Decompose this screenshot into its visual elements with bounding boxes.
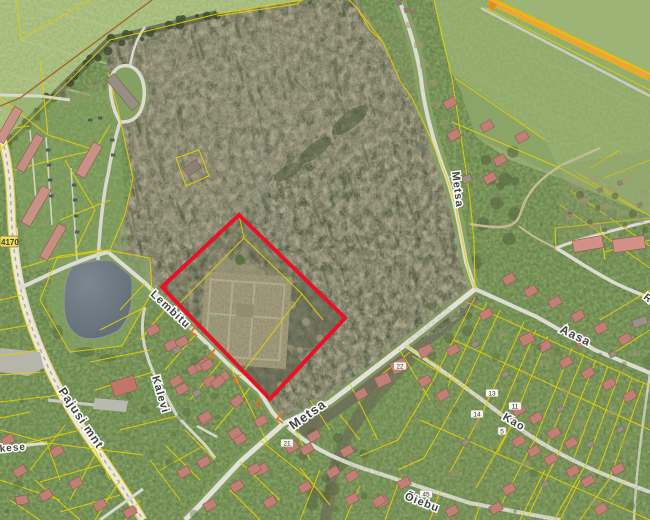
svg-text:5: 5 bbox=[500, 428, 504, 435]
svg-text:21: 21 bbox=[283, 440, 291, 447]
svg-text:11: 11 bbox=[512, 403, 519, 410]
svg-text:45: 45 bbox=[422, 491, 430, 498]
svg-text:13: 13 bbox=[488, 390, 496, 397]
svg-text:kese: kese bbox=[0, 442, 26, 455]
svg-text:4170: 4170 bbox=[1, 238, 19, 247]
svg-text:14: 14 bbox=[473, 411, 481, 418]
svg-text:22: 22 bbox=[396, 363, 404, 370]
